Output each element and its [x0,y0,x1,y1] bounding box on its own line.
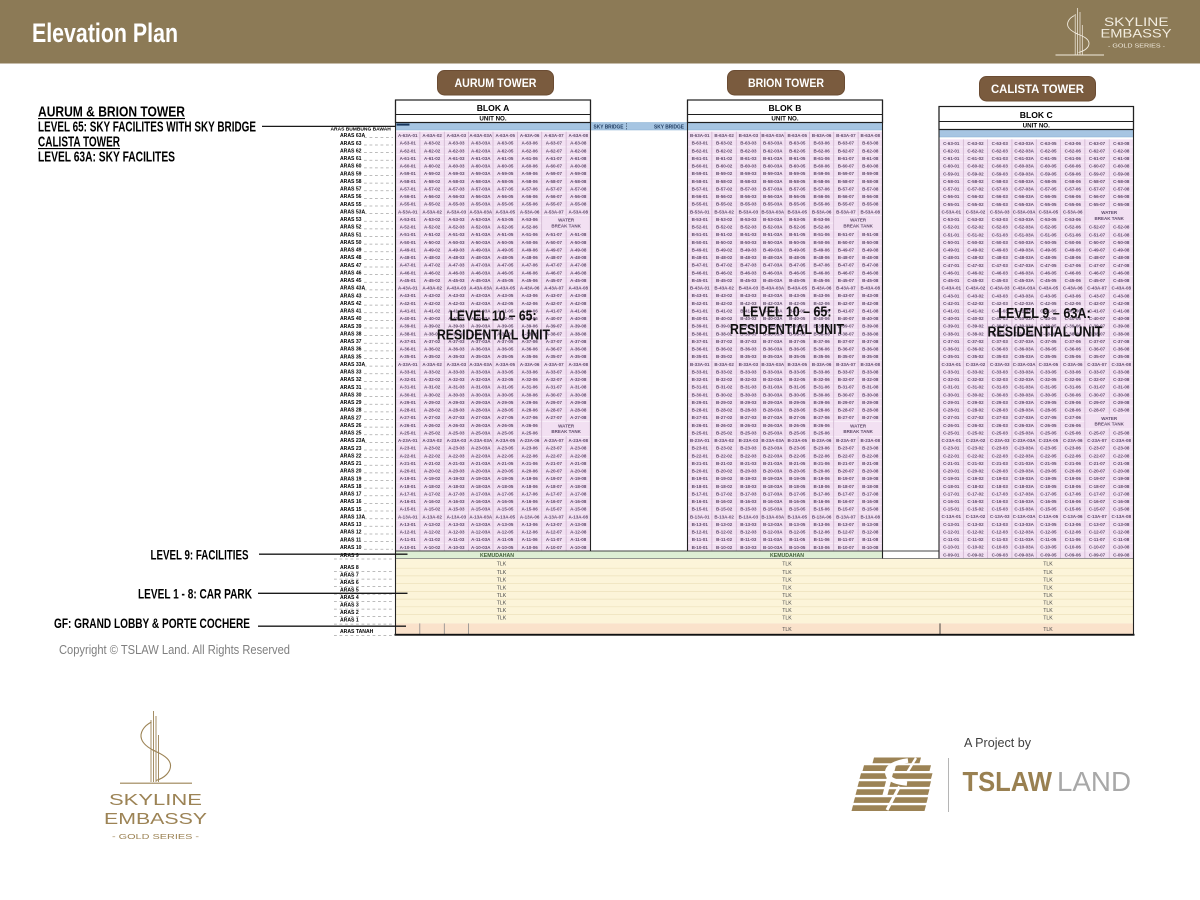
svg-text:C-32-01: C-32-01 [943,377,960,382]
svg-text:C-47-02: C-47-02 [967,263,984,268]
svg-text:C-15-06: C-15-06 [1065,507,1082,512]
svg-text:C-20-08: C-20-08 [1113,469,1130,474]
svg-text:B-23-01: B-23-01 [692,446,709,451]
svg-text:A-58-06: A-58-06 [521,179,538,184]
svg-text:B-35-03A: B-35-03A [763,354,783,359]
svg-text:B-52-06: B-52-06 [813,225,830,230]
svg-text:B-35-05: B-35-05 [789,354,806,359]
svg-text:B-19-08: B-19-08 [862,476,879,481]
svg-text:C-36-03: C-36-03 [992,347,1009,352]
svg-text:A-13A-05: A-13A-05 [495,514,515,519]
svg-text:A-60-05: A-60-05 [497,164,514,169]
svg-text:B-42-07: B-42-07 [838,301,855,306]
svg-text:B-17-06: B-17-06 [813,491,830,496]
svg-text:A-27-08: A-27-08 [570,415,587,420]
svg-text:C-35-08: C-35-08 [1113,354,1130,359]
svg-text:A-26-02: A-26-02 [424,423,441,428]
svg-text:C-22-03: C-22-03 [992,453,1009,458]
svg-text:A-60-03A: A-60-03A [471,164,491,169]
svg-text:B-27-08: B-27-08 [862,415,879,420]
svg-text:UNIT NO.: UNIT NO. [479,115,506,122]
svg-text:A-22-03A: A-22-03A [471,453,491,458]
svg-text:C-20-03: C-20-03 [992,469,1009,474]
svg-text:B-50-01: B-50-01 [692,240,709,245]
svg-text:B-53A-06: B-53A-06 [812,209,832,214]
svg-text:B-57-07: B-57-07 [838,186,855,191]
svg-text:B-13A-02: B-13A-02 [714,514,734,519]
svg-text:LAND: LAND [1057,766,1131,797]
svg-text:B-46-07: B-46-07 [838,270,855,275]
svg-text:ARAS 62: ARAS 62 [340,148,362,154]
svg-text:B-16-03A: B-16-03A [763,499,783,504]
svg-text:A-13-05: A-13-05 [497,522,514,527]
svg-text:B-20-01: B-20-01 [692,469,709,474]
svg-text:A-42-07: A-42-07 [546,301,563,306]
svg-text:B-13-08: B-13-08 [862,522,879,527]
svg-text:A-21-05: A-21-05 [497,461,514,466]
svg-text:B-20-02: B-20-02 [716,469,733,474]
svg-text:A-46-06: A-46-06 [521,270,538,275]
svg-text:B-31-06: B-31-06 [813,385,830,390]
svg-text:A-63-06: A-63-06 [521,141,538,146]
svg-text:C-52-05: C-52-05 [1040,225,1057,230]
svg-text:B-20-07: B-20-07 [838,469,855,474]
svg-text:C-59-08: C-59-08 [1113,171,1130,176]
svg-text:C-28-06: C-28-06 [1065,408,1082,413]
svg-text:B-27-06: B-27-06 [813,415,830,420]
svg-text:B-43-06: B-43-06 [813,293,830,298]
svg-text:C-11-05: C-11-05 [1040,537,1057,542]
svg-text:B-62-07: B-62-07 [838,148,855,153]
svg-text:C-10-03A: C-10-03A [1014,545,1034,550]
svg-text:B-30-03: B-30-03 [740,392,757,397]
svg-text:UNIT NO.: UNIT NO. [771,115,798,122]
svg-text:C-45-03A: C-45-03A [1014,278,1034,283]
svg-text:B-61-07: B-61-07 [838,156,855,161]
svg-text:A-61-01: A-61-01 [400,156,417,161]
svg-text:C-10-05: C-10-05 [1040,545,1057,550]
svg-text:A-49-05: A-49-05 [497,247,514,252]
svg-text:B-63-08: B-63-08 [862,141,879,146]
svg-text:C-13-05: C-13-05 [1040,522,1057,527]
svg-text:A-28-06: A-28-06 [521,408,538,413]
svg-text:C-42-06: C-42-06 [1065,301,1082,306]
svg-text:A-11-08: A-11-08 [570,537,587,542]
svg-text:A-63-02: A-63-02 [424,141,441,146]
svg-text:TSLAW: TSLAW [963,766,1053,797]
svg-text:C-43A-03: C-43A-03 [990,286,1010,291]
svg-text:B-55-01: B-55-01 [692,202,709,207]
svg-text:B-16-06: B-16-06 [813,499,830,504]
svg-text:B-31-02: B-31-02 [716,385,733,390]
svg-text:BREAK TANK: BREAK TANK [843,223,873,228]
svg-text:C-23A-05: C-23A-05 [1039,438,1059,443]
svg-text:B-59-03A: B-59-03A [763,171,783,176]
svg-text:A-35-08: A-35-08 [570,354,587,359]
svg-text:C-27-01: C-27-01 [943,415,960,420]
svg-text:B-11-02: B-11-02 [716,537,733,542]
svg-text:B-29-03: B-29-03 [740,400,757,405]
svg-text:B-49-08: B-49-08 [862,247,879,252]
svg-text:B-56-01: B-56-01 [692,194,709,199]
svg-text:C-26-02: C-26-02 [967,423,984,428]
svg-text:B-35-02: B-35-02 [716,354,733,359]
svg-text:A-63A-06: A-63A-06 [520,133,540,138]
svg-text:B-31-07: B-31-07 [838,385,855,390]
svg-text:A-38-08: A-38-08 [570,331,587,336]
svg-text:C-23-03A: C-23-03A [1014,446,1034,451]
svg-text:B-50-05: B-50-05 [789,240,806,245]
svg-text:C-60-08: C-60-08 [1113,164,1130,169]
svg-text:A-29-03A: A-29-03A [471,400,491,405]
svg-text:B-46-08: B-46-08 [862,270,879,275]
svg-text:ARAS 12: ARAS 12 [340,530,362,536]
svg-text:TLK: TLK [1043,578,1053,584]
svg-text:A-18-02: A-18-02 [424,484,441,489]
svg-text:A-45-01: A-45-01 [400,278,417,283]
svg-text:C-39-02: C-39-02 [967,324,984,329]
svg-text:B-33A-07: B-33A-07 [836,362,856,367]
svg-text:B-33-08: B-33-08 [862,369,879,374]
svg-text:A-32-08: A-32-08 [570,377,587,382]
svg-text:BLOK B: BLOK B [769,103,802,113]
svg-text:C-29-02: C-29-02 [967,400,984,405]
svg-text:A-23A-06: A-23A-06 [520,438,540,443]
svg-text:B-26-06: B-26-06 [813,423,830,428]
svg-text:B-35-08: B-35-08 [862,354,879,359]
svg-text:BREAK TANK: BREAK TANK [1094,216,1124,221]
svg-text:A-20-06: A-20-06 [521,469,538,474]
svg-text:A-55-03: A-55-03 [448,202,465,207]
svg-text:A-42-03A: A-42-03A [471,301,491,306]
svg-text:LEVEL 10 – 65:: LEVEL 10 – 65: [743,305,832,321]
svg-text:B-13-07: B-13-07 [838,522,855,527]
svg-text:ARAS 1: ARAS 1 [340,617,359,623]
svg-text:C-53A-06: C-53A-06 [1063,209,1083,214]
svg-text:C-16-07: C-16-07 [1089,499,1106,504]
svg-text:B-11-01: B-11-01 [692,537,709,542]
svg-text:A-53-02: A-53-02 [424,217,441,222]
svg-text:B-62-05: B-62-05 [789,148,806,153]
svg-text:SKY BRIDGE: SKY BRIDGE [594,124,624,130]
svg-text:B-17-05: B-17-05 [789,491,806,496]
svg-text:B-36-05: B-36-05 [789,347,806,352]
svg-text:C-43A-07: C-43A-07 [1087,286,1107,291]
svg-text:A-22-02: A-22-02 [424,453,441,458]
svg-text:C-19-05: C-19-05 [1040,476,1057,481]
svg-text:A-22-05: A-22-05 [497,453,514,458]
svg-text:C-22-08: C-22-08 [1113,453,1130,458]
svg-text:C-52-03: C-52-03 [992,225,1009,230]
svg-text:B-29-08: B-29-08 [862,400,879,405]
svg-text:WATER: WATER [850,218,867,223]
svg-text:C-45-06: C-45-06 [1065,278,1082,283]
svg-text:ARAS 16: ARAS 16 [340,499,362,505]
svg-text:B-42-02: B-42-02 [716,301,733,306]
svg-text:C-60-05: C-60-05 [1040,164,1057,169]
svg-text:B-11-08: B-11-08 [862,537,879,542]
svg-text:A-47-03A: A-47-03A [471,263,491,268]
svg-text:BREAK TANK: BREAK TANK [1094,422,1124,427]
svg-text:A-50-02: A-50-02 [424,240,441,245]
svg-text:C-53A-01: C-53A-01 [941,209,961,214]
svg-text:C-58-01: C-58-01 [943,179,960,184]
svg-text:C-30-08: C-30-08 [1113,392,1130,397]
svg-text:A-19-05: A-19-05 [497,476,514,481]
svg-text:C-39-01: C-39-01 [943,324,960,329]
svg-text:C-42-02: C-42-02 [967,301,984,306]
svg-text:A-10-01: A-10-01 [400,545,417,550]
svg-text:C-15-05: C-15-05 [1040,507,1057,512]
svg-text:A-28-03: A-28-03 [448,408,465,413]
svg-text:B-58-03A: B-58-03A [763,179,783,184]
svg-text:A-11-03A: A-11-03A [471,537,491,542]
svg-text:B-37-05: B-37-05 [789,339,806,344]
svg-text:B-16-05: B-16-05 [789,499,806,504]
svg-text:C-21-06: C-21-06 [1065,461,1082,466]
svg-text:B-13-05: B-13-05 [789,522,806,527]
svg-text:C-50-03: C-50-03 [992,240,1009,245]
svg-text:ARAS 7: ARAS 7 [340,572,359,578]
svg-text:A-29-02: A-29-02 [424,400,441,405]
svg-text:A-11-03: A-11-03 [448,537,465,542]
svg-text:C-38-08: C-38-08 [1113,331,1130,336]
svg-text:B-33A-06: B-33A-06 [812,362,832,367]
svg-text:A-50-01: A-50-01 [400,240,417,245]
svg-text:B-48-02: B-48-02 [716,255,733,260]
svg-text:B-29-03A: B-29-03A [763,400,783,405]
svg-text:A-50-03: A-50-03 [448,240,465,245]
svg-text:A-36-06: A-36-06 [521,347,538,352]
svg-text:B-23A-05: B-23A-05 [787,438,807,443]
svg-text:A-55-05: A-55-05 [497,202,514,207]
svg-text:B-27-01: B-27-01 [692,415,709,420]
svg-text:B-60-02: B-60-02 [716,164,733,169]
svg-text:A-57-07: A-57-07 [546,186,563,191]
svg-text:ARAS 15: ARAS 15 [340,507,362,513]
svg-text:B-45-03: B-45-03 [740,278,757,283]
svg-text:C-36-07: C-36-07 [1089,347,1106,352]
svg-text:C-20-05: C-20-05 [1040,469,1057,474]
svg-text:C-45-03: C-45-03 [992,278,1009,283]
svg-text:B-59-07: B-59-07 [838,171,855,176]
svg-text:B-49-07: B-49-07 [838,247,855,252]
svg-text:B-40-01: B-40-01 [692,316,709,321]
svg-text:A-55-03A: A-55-03A [471,202,491,207]
svg-text:C-16-05: C-16-05 [1040,499,1057,504]
svg-text:C-13-02: C-13-02 [967,522,984,527]
svg-text:A-31-07: A-31-07 [546,385,563,390]
svg-text:A-46-03: A-46-03 [448,270,465,275]
svg-text:A-30-06: A-30-06 [521,392,538,397]
svg-text:A-26-03: A-26-03 [448,423,465,428]
svg-text:A-21-03A: A-21-03A [471,461,491,466]
svg-text:B-26-01: B-26-01 [692,423,709,428]
svg-text:A-35-01: A-35-01 [400,354,417,359]
svg-text:ARAS 55: ARAS 55 [340,202,362,208]
svg-text:A-62-08: A-62-08 [570,148,587,153]
svg-text:A-58-01: A-58-01 [400,179,417,184]
svg-text:TLK: TLK [1043,561,1053,567]
svg-text:A-35-02: A-35-02 [424,354,441,359]
svg-text:A-61-07: A-61-07 [546,156,563,161]
svg-text:A-17-01: A-17-01 [400,491,417,496]
svg-text:A-33-01: A-33-01 [400,369,417,374]
svg-text:A-48-06: A-48-06 [521,255,538,260]
svg-text:B-50-02: B-50-02 [716,240,733,245]
svg-text:B-53-06: B-53-06 [813,217,830,222]
svg-text:C-26-03: C-26-03 [992,423,1009,428]
svg-text:B-20-03A: B-20-03A [763,469,783,474]
svg-text:TLK: TLK [782,585,792,591]
svg-text:A-31-02: A-31-02 [424,385,441,390]
svg-text:B-63-01: B-63-01 [692,141,709,146]
svg-text:A-63A-05: A-63A-05 [495,133,515,138]
svg-text:B-47-05: B-47-05 [789,263,806,268]
svg-text:A-58-03A: A-58-03A [471,179,491,184]
svg-text:C-59-01: C-59-01 [943,171,960,176]
svg-text:BREAK TANK: BREAK TANK [843,429,873,434]
svg-text:B-53A-03A: B-53A-03A [761,209,785,214]
svg-text:C-13A-03: C-13A-03 [990,514,1010,519]
svg-text:C-28-03A: C-28-03A [1014,408,1034,413]
svg-text:TLK: TLK [1043,570,1053,576]
svg-text:B-23-06: B-23-06 [813,446,830,451]
svg-text:C-17-07: C-17-07 [1089,491,1106,496]
svg-text:B-56-03A: B-56-03A [763,194,783,199]
svg-text:B-37-03: B-37-03 [740,339,757,344]
svg-text:B-62-03A: B-62-03A [763,148,783,153]
svg-text:A-10-07: A-10-07 [546,545,563,550]
svg-text:ARAS 13A: ARAS 13A [340,514,366,520]
svg-text:B-11-06: B-11-06 [814,537,831,542]
svg-text:C-58-06: C-58-06 [1065,179,1082,184]
svg-text:B-26-03: B-26-03 [740,423,757,428]
svg-text:ARAS 37: ARAS 37 [340,339,362,345]
svg-text:KEMUDAHAN: KEMUDAHAN [480,553,514,559]
svg-text:A-49-01: A-49-01 [400,247,417,252]
svg-text:B-47-07: B-47-07 [838,263,855,268]
svg-text:B-49-02: B-49-02 [716,247,733,252]
svg-text:A-57-05: A-57-05 [497,186,514,191]
svg-text:A-40-07: A-40-07 [546,316,563,321]
svg-text:C-52-02: C-52-02 [967,225,984,230]
svg-text:C-42-01: C-42-01 [943,301,960,306]
svg-text:A-17-06: A-17-06 [521,491,538,496]
svg-text:C-42-05: C-42-05 [1040,301,1057,306]
svg-text:C-47-06: C-47-06 [1065,263,1082,268]
svg-text:C-19-03: C-19-03 [992,476,1009,481]
svg-text:B-18-03: B-18-03 [740,484,757,489]
svg-text:C-21-03A: C-21-03A [1014,461,1034,466]
svg-text:A-16-03A: A-16-03A [471,499,491,504]
svg-text:B-27-07: B-27-07 [838,415,855,420]
svg-text:C-10-02: C-10-02 [967,545,984,550]
svg-text:C-35-06: C-35-06 [1065,354,1082,359]
svg-text:C-52-01: C-52-01 [943,225,960,230]
svg-text:B-49-03: B-49-03 [740,247,757,252]
svg-text:C-19-01: C-19-01 [943,476,960,481]
svg-text:B-53-01: B-53-01 [692,217,709,222]
svg-text:C-51-02: C-51-02 [967,232,984,237]
svg-text:C-33-01: C-33-01 [943,369,960,374]
svg-text:B-19-06: B-19-06 [813,476,830,481]
svg-text:B-31-03: B-31-03 [740,385,757,390]
svg-text:A-62-03A: A-62-03A [471,148,491,153]
svg-text:B-58-07: B-58-07 [838,179,855,184]
svg-text:C-11-08: C-11-08 [1113,537,1130,542]
svg-text:B-56-07: B-56-07 [838,194,855,199]
svg-text:A-33A-03: A-33A-03 [447,362,467,367]
svg-text:B-27-05: B-27-05 [789,415,806,420]
svg-text:B-43A-03: B-43A-03 [739,286,759,291]
svg-text:B-51-06: B-51-06 [813,232,830,237]
svg-text:A-57-08: A-57-08 [570,186,587,191]
svg-text:B-46-03A: B-46-03A [763,270,783,275]
svg-text:A-60-03: A-60-03 [448,164,465,169]
svg-text:CALISTA TOWER: CALISTA TOWER [991,82,1084,96]
svg-text:B-32-06: B-32-06 [813,377,830,382]
svg-text:C-35-05: C-35-05 [1040,354,1057,359]
svg-text:B-10-03A: B-10-03A [763,545,783,550]
svg-text:B-61-03: B-61-03 [740,156,757,161]
svg-text:C-23-08: C-23-08 [1113,446,1130,451]
svg-text:A-47-07: A-47-07 [546,263,563,268]
svg-text:A-11-07: A-11-07 [546,537,563,542]
svg-text:B-56-08: B-56-08 [862,194,879,199]
svg-text:B-28-06: B-28-06 [813,408,830,413]
svg-text:C-43A-06: C-43A-06 [1063,286,1083,291]
svg-text:A-30-05: A-30-05 [497,392,514,397]
svg-text:B-41-07: B-41-07 [838,308,855,313]
svg-text:ARAS 21: ARAS 21 [340,461,362,467]
svg-text:B-33-01: B-33-01 [692,369,709,374]
svg-text:C-46-02: C-46-02 [967,270,984,275]
svg-text:A-20-03A: A-20-03A [471,469,491,474]
svg-text:A-30-08: A-30-08 [570,392,587,397]
svg-text:C-59-03: C-59-03 [992,171,1009,176]
svg-text:B-22-05: B-22-05 [789,453,806,458]
svg-text:A-43-03A: A-43-03A [471,293,491,298]
svg-text:A-22-03: A-22-03 [448,453,465,458]
svg-text:B-37-06: B-37-06 [813,339,830,344]
svg-text:A-32-02: A-32-02 [424,377,441,382]
svg-text:A-28-07: A-28-07 [546,408,563,413]
svg-text:SKYLINE: SKYLINE [1104,17,1169,29]
svg-text:A-36-02: A-36-02 [424,347,441,352]
svg-text:AURUM TOWER: AURUM TOWER [455,76,537,90]
svg-text:A-37-08: A-37-08 [570,339,587,344]
svg-text:A-17-08: A-17-08 [570,491,587,496]
svg-text:A-32-03: A-32-03 [448,377,465,382]
svg-text:B-51-03A: B-51-03A [763,232,783,237]
svg-text:A-40-02: A-40-02 [424,316,441,321]
svg-text:C-46-01: C-46-01 [943,270,960,275]
svg-text:A-43A-05: A-43A-05 [495,286,515,291]
svg-text:B-21-01: B-21-01 [692,461,709,466]
svg-text:KEMUDAHAN: KEMUDAHAN [770,553,804,559]
svg-text:C-58-07: C-58-07 [1089,179,1106,184]
svg-text:A-52-03A: A-52-03A [471,225,491,230]
svg-text:C-57-07: C-57-07 [1089,187,1106,192]
svg-text:B-31-03A: B-31-03A [763,385,783,390]
svg-text:B-32-05: B-32-05 [789,377,806,382]
svg-text:B-53-03A: B-53-03A [763,217,783,222]
svg-text:A-33-03: A-33-03 [448,369,465,374]
svg-text:C-12-02: C-12-02 [967,529,984,534]
svg-text:B-30-01: B-30-01 [692,392,709,397]
svg-text:B-43-08: B-43-08 [862,293,879,298]
